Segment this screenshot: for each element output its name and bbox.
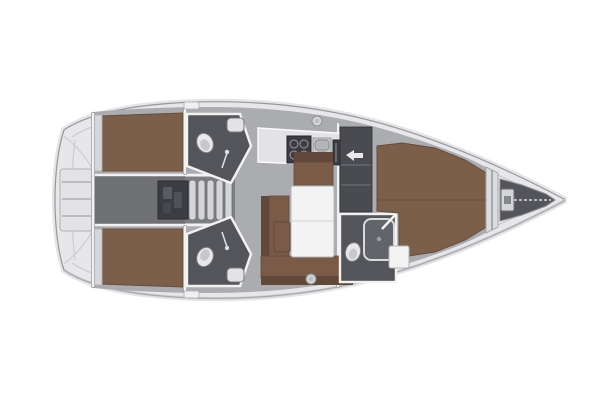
engine-detail-2: [174, 192, 182, 208]
sink: [227, 268, 244, 282]
aft-cabin-starboard-shelf: [94, 229, 102, 285]
forward-vestibule: [340, 127, 372, 212]
stair-tread: [207, 180, 214, 220]
shower-head: [225, 246, 229, 250]
floor-plan-canvas: [0, 0, 600, 400]
deck-hatch-starboard: [184, 291, 199, 298]
bench-seat-back: [294, 152, 333, 162]
stool: [274, 222, 290, 252]
companionway-stairs: [189, 180, 232, 220]
yacht-floor-plan: [0, 0, 600, 400]
vestibule-floor: [340, 127, 372, 212]
engine-detail-3: [163, 203, 171, 213]
aft-cabin-starboard: [94, 229, 183, 287]
settee-left-back: [261, 196, 269, 258]
engine-detail-1: [163, 187, 172, 199]
galley-sink-basin-1: [315, 140, 329, 150]
forward-cabin-step-seat: [389, 246, 409, 268]
forward-head: [340, 214, 396, 282]
deck-hatch-port: [184, 102, 199, 109]
aft-berth-starboard: [101, 229, 183, 287]
aft-cabin-port: [94, 113, 183, 171]
sink: [227, 118, 244, 132]
aft-berth-port: [101, 113, 183, 171]
companionway: [93, 174, 235, 226]
bench-seat: [294, 162, 333, 188]
stair-tread: [198, 180, 205, 220]
transom-steps: [60, 169, 93, 231]
shower-drain: [377, 237, 381, 241]
stair-tread: [216, 180, 223, 220]
engine-compartment: [158, 181, 188, 219]
stair-tread: [225, 180, 232, 220]
shower-head: [225, 150, 229, 154]
aft-cabin-port-shelf: [94, 115, 102, 171]
winch-port-drum: [315, 119, 320, 124]
stair-tread: [189, 180, 196, 220]
winch-starboard-drum: [309, 277, 314, 282]
windlass-gypsy: [504, 196, 511, 204]
